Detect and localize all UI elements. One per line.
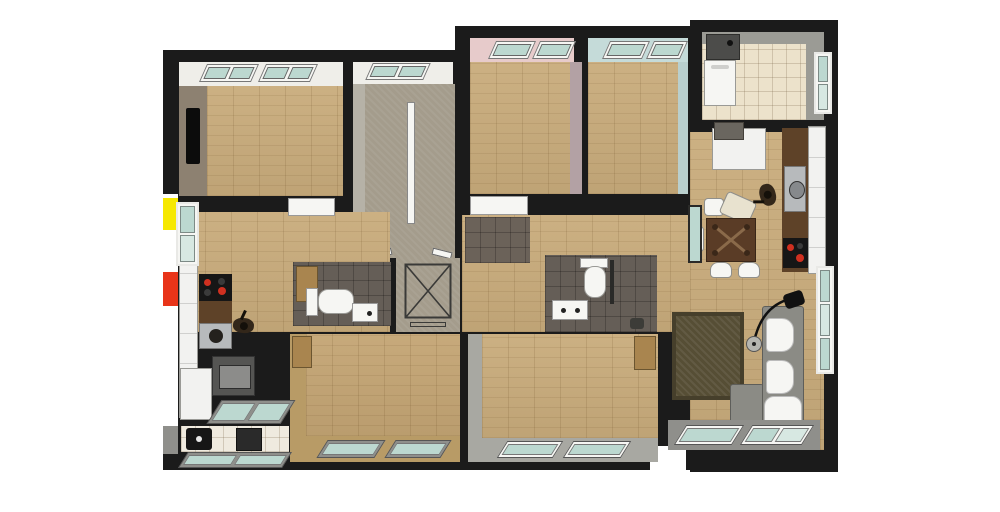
skylight-glass [650, 44, 683, 56]
right-wall-window-living [816, 266, 834, 374]
window-glass [818, 56, 828, 82]
dining-chair [710, 262, 732, 278]
glass-partition [688, 205, 702, 263]
roof-window [497, 441, 564, 458]
sofa-cushion [766, 360, 794, 394]
roof-window-glass [389, 443, 446, 455]
basin-drain [575, 308, 580, 313]
roof-window [207, 400, 296, 424]
skylight-glass [370, 66, 399, 77]
roof-window-glass [679, 428, 740, 442]
bedroom-pink-floor [470, 62, 570, 194]
washbasin [352, 303, 378, 322]
roof-window [563, 441, 632, 458]
skylight-glass [606, 44, 645, 56]
oven [212, 356, 255, 396]
skylight-glass [262, 67, 289, 79]
roof-window-glass [568, 444, 627, 455]
sink-basin [209, 329, 223, 343]
skylight-glass [287, 67, 314, 79]
right-wall-window-top [814, 52, 832, 114]
arc-lamp-base [746, 336, 762, 352]
elevator-car [404, 263, 452, 319]
roof-window-glass [502, 444, 559, 455]
window-glass [820, 270, 830, 302]
elevator-sill [410, 322, 446, 327]
wall-window-recess [186, 108, 200, 164]
skylight-glass [397, 66, 426, 77]
burner [204, 279, 211, 286]
roof-window [740, 425, 814, 445]
boiler-dial [196, 436, 202, 442]
skylight-glass [492, 44, 531, 56]
person-arm [753, 200, 764, 203]
roof-window-glass [774, 428, 809, 442]
window-glass [820, 338, 830, 370]
cooktop [783, 238, 808, 268]
window-glass [820, 304, 830, 336]
boiler-box [706, 34, 740, 60]
cooktop [199, 274, 232, 301]
roof-window-glass [183, 455, 237, 465]
stair-railing [407, 102, 415, 224]
bedroom-bm-floor [482, 334, 658, 438]
wall-cabinet [634, 336, 656, 370]
window-glass [180, 206, 195, 233]
bedroom-blue-floor [588, 62, 678, 194]
bedroom-top-left-floor [207, 86, 343, 196]
skylight-glass [536, 44, 571, 56]
partition-glass [690, 207, 700, 261]
dining-table [706, 218, 756, 262]
window-glass [180, 235, 195, 262]
kitchen-tall-cabinets [808, 126, 826, 274]
bedroom-blue-wall-right [678, 62, 688, 194]
washer-handle [711, 65, 729, 69]
lamp-base-center [752, 342, 756, 346]
sink-basin [789, 181, 805, 199]
basin-drain [561, 308, 566, 313]
person-figure-left [229, 309, 258, 341]
skylight-glass [228, 67, 255, 79]
roof-window [178, 452, 292, 468]
bedroom-bl-floor [306, 334, 460, 436]
burner [204, 289, 211, 296]
roof-window-glass [321, 443, 380, 455]
roof-window-glass [233, 455, 287, 465]
hall-closet [288, 198, 335, 216]
burner [797, 243, 803, 249]
kitchen-sink [199, 323, 232, 349]
burner [218, 287, 226, 295]
skylight-window [365, 63, 431, 80]
toilet-bowl [584, 266, 606, 298]
washer-counter [704, 60, 736, 106]
left-wall-window [176, 202, 199, 266]
boiler-dial [727, 40, 733, 46]
bedroom-pink-wall-right [570, 62, 582, 194]
kitchen-counter [199, 301, 232, 323]
burner [787, 244, 794, 251]
skylight-window [488, 41, 536, 59]
skylight-window [258, 64, 318, 82]
dining-chair [738, 262, 760, 278]
skylight-window [199, 64, 259, 82]
burner [796, 254, 804, 262]
washer [236, 428, 262, 451]
boiler-unit [186, 428, 212, 450]
toilet-bowl [318, 289, 354, 314]
floor-plan-canvas [0, 0, 1000, 512]
skylight-glass [203, 67, 230, 79]
skylight-window [602, 41, 650, 59]
shower-partition [610, 260, 614, 304]
wall-cabinet [292, 336, 312, 368]
window-glass [818, 84, 828, 110]
kitchen-fridge-top [714, 122, 744, 140]
facade-gray-piece [163, 426, 178, 454]
bath-item [630, 318, 644, 329]
washbasin [552, 300, 588, 320]
oven-door [219, 365, 251, 389]
entry-tile-floor [465, 217, 530, 263]
facade-accent-red [163, 272, 178, 306]
fridge [180, 368, 212, 420]
burner [218, 278, 225, 285]
toilet-tank [306, 288, 318, 316]
hall-closet [470, 196, 528, 215]
basin-drain [367, 311, 372, 316]
kitchen-sink [784, 166, 806, 212]
roof-window [384, 440, 451, 458]
roof-window [316, 440, 385, 458]
